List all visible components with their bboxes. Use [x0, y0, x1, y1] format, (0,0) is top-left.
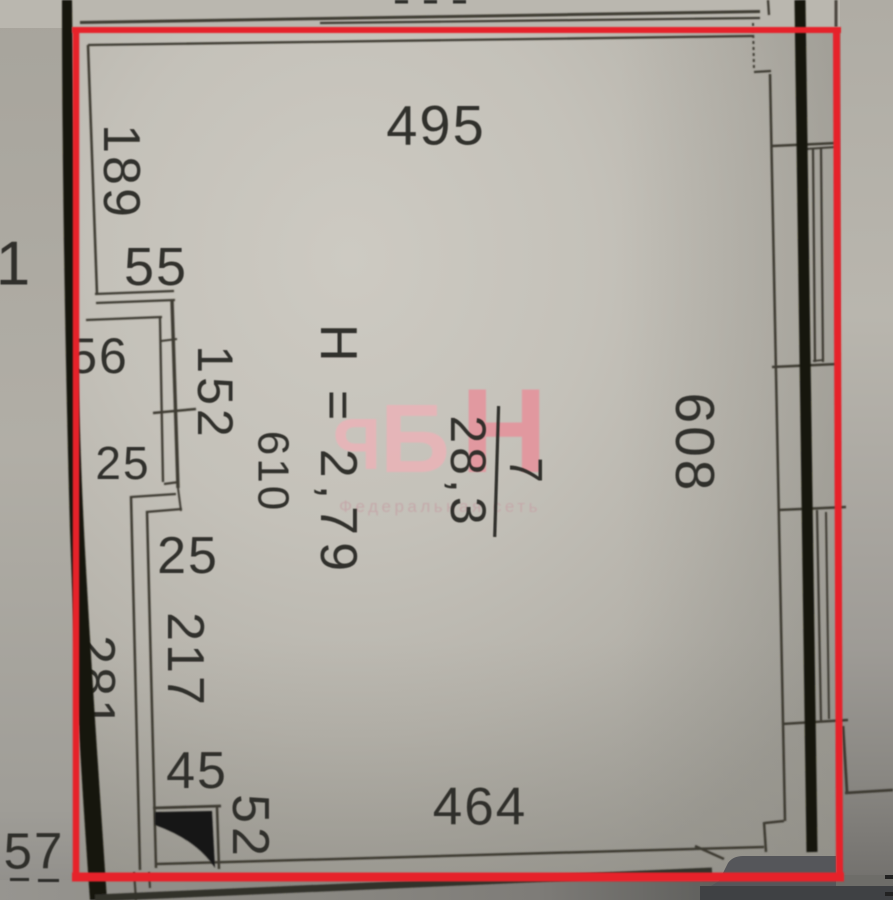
svg-text:Б: Б	[380, 384, 450, 493]
svg-text:52: 52	[221, 794, 279, 860]
svg-text:7: 7	[500, 457, 552, 483]
svg-text:152: 152	[187, 345, 243, 440]
svg-text:Н = 2,79: Н = 2,79	[309, 324, 367, 578]
svg-text:464: 464	[433, 778, 527, 837]
svg-text:45: 45	[166, 742, 228, 800]
svg-text:495: 495	[386, 94, 485, 157]
svg-text:217: 217	[156, 612, 214, 708]
svg-text:608: 608	[664, 393, 726, 494]
svg-text:55: 55	[124, 237, 188, 297]
svg-text:25: 25	[157, 527, 219, 585]
svg-text:Федеральная сеть: Федеральная сеть	[339, 497, 541, 516]
svg-text:25: 25	[95, 437, 150, 489]
svg-text:1: 1	[0, 230, 30, 299]
svg-text:610: 610	[249, 431, 298, 513]
svg-text:57: 57	[4, 823, 65, 880]
svg-text:189: 189	[92, 124, 150, 220]
svg-text:28,3: 28,3	[440, 415, 496, 528]
